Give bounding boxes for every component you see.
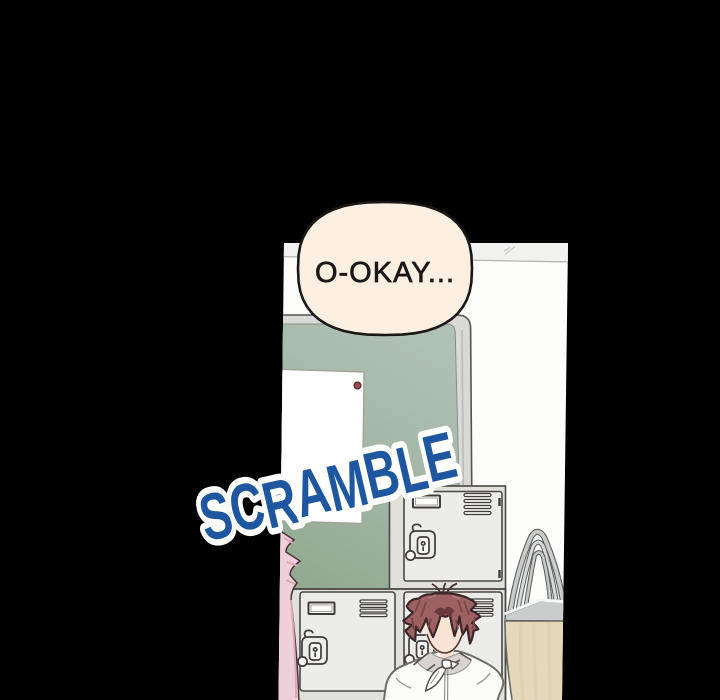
svg-text:O-OKAY...: O-OKAY...: [315, 257, 455, 289]
